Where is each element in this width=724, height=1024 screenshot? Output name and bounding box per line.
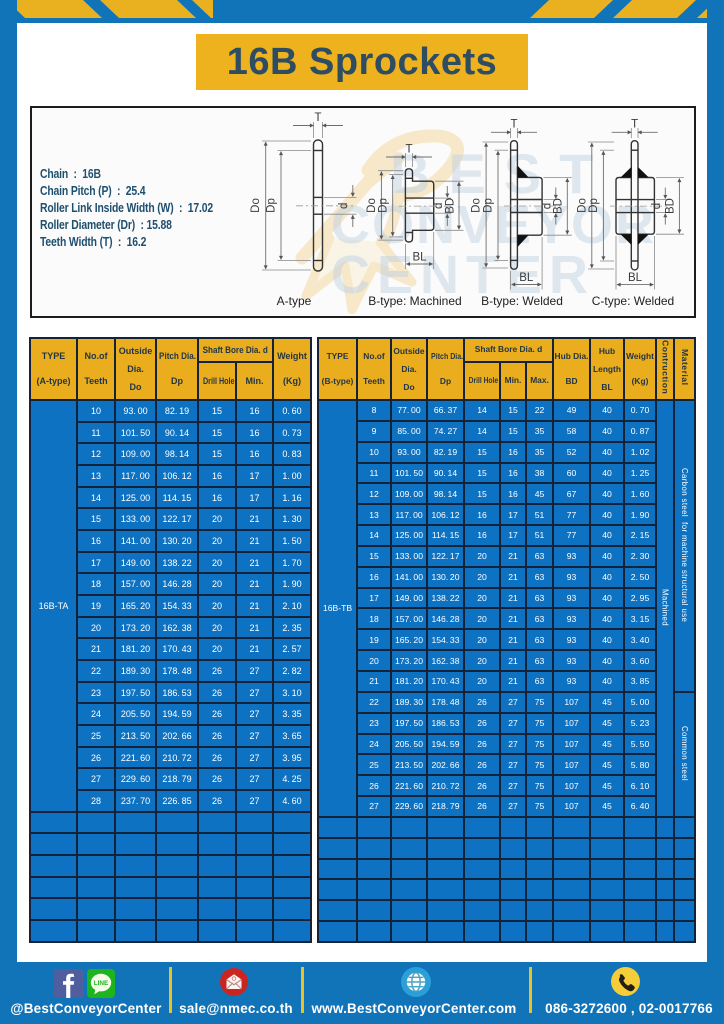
- svg-text:Do: Do: [250, 198, 262, 213]
- svg-text:B-type: Welded: B-type: Welded: [481, 294, 563, 308]
- svg-text:BD: BD: [664, 198, 676, 214]
- svg-text:Do: Do: [576, 198, 588, 213]
- svg-text:d: d: [541, 203, 553, 209]
- svg-text:BD: BD: [444, 198, 456, 214]
- svg-text:A-type: A-type: [277, 294, 312, 308]
- svg-text:d: d: [651, 203, 663, 209]
- svg-text:d: d: [338, 203, 350, 209]
- svg-text:LINE: LINE: [94, 980, 109, 987]
- svg-text:Dp: Dp: [266, 198, 278, 213]
- svg-text:BD: BD: [553, 198, 565, 214]
- svg-text:C-type: Welded: C-type: Welded: [592, 294, 674, 308]
- svg-text:T: T: [314, 112, 321, 124]
- svg-text:BL: BL: [412, 252, 427, 264]
- svg-text:B-type: Machined: B-type: Machined: [368, 294, 461, 308]
- svg-text:Dp: Dp: [377, 198, 389, 213]
- svg-text:d: d: [433, 203, 445, 209]
- svg-text:Dp: Dp: [483, 198, 495, 213]
- svg-text:Do: Do: [471, 198, 483, 213]
- svg-text:Do: Do: [366, 198, 378, 213]
- svg-text:T: T: [510, 119, 517, 131]
- svg-text:Dp: Dp: [588, 198, 600, 213]
- svg-text:T: T: [631, 119, 638, 131]
- svg-text:BL: BL: [628, 272, 643, 284]
- svg-text:T: T: [405, 144, 412, 156]
- svg-text:BL: BL: [519, 272, 534, 284]
